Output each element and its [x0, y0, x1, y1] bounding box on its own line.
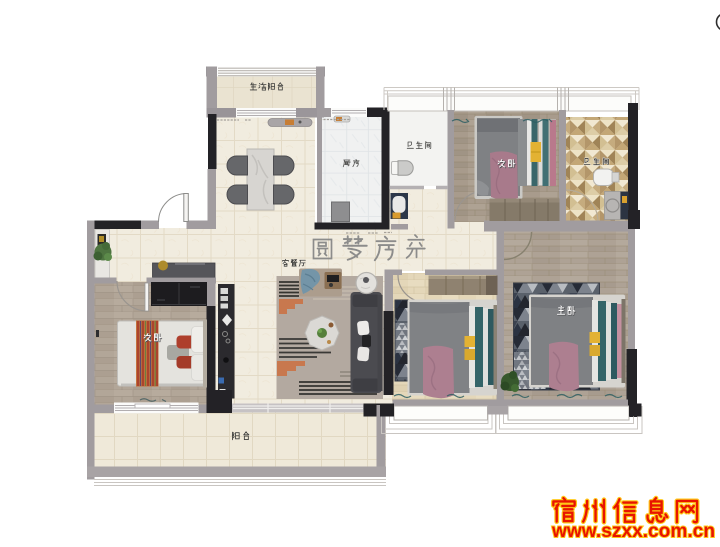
svg-text:www.szxx.com.cn: www.szxx.com.cn [551, 520, 715, 542]
